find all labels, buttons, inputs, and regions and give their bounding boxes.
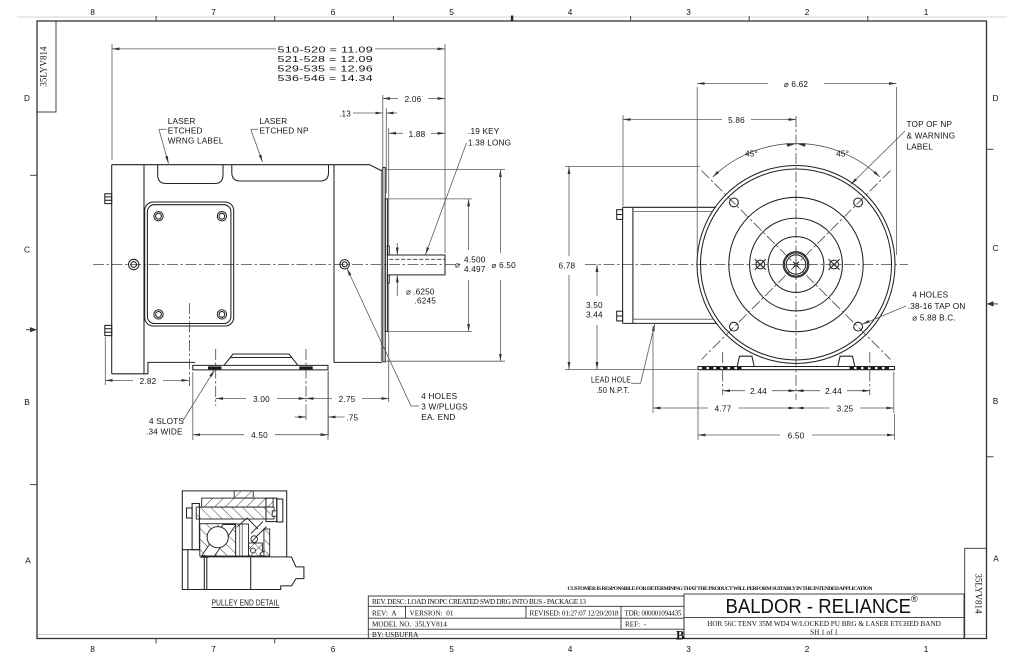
svg-text:BY: USBUFRA: BY: USBUFRA bbox=[372, 631, 419, 639]
svg-text:D: D bbox=[993, 93, 999, 103]
svg-text:REF: -: REF: - bbox=[625, 621, 647, 629]
svg-text:PULLEY END DETAIL: PULLEY END DETAIL bbox=[212, 598, 280, 607]
svg-text:.19 KEY: .19 KEY bbox=[468, 127, 500, 136]
svg-text:521-528 = 12.09: 521-528 = 12.09 bbox=[278, 55, 374, 64]
svg-text:45°: 45° bbox=[745, 150, 758, 159]
svg-text:ETCHED NP: ETCHED NP bbox=[260, 127, 309, 136]
svg-text:1.88: 1.88 bbox=[409, 130, 426, 139]
svg-text:4.77: 4.77 bbox=[715, 405, 732, 414]
svg-text:2.06: 2.06 bbox=[405, 95, 422, 104]
svg-text:⌀ 5.88 B.C.: ⌀ 5.88 B.C. bbox=[912, 314, 956, 323]
svg-text:3.50: 3.50 bbox=[586, 301, 603, 310]
svg-text:LASER: LASER bbox=[168, 117, 196, 126]
svg-text:B: B bbox=[24, 397, 30, 407]
svg-text:REV. DESC: LOAD INOPC CREATED: REV. DESC: LOAD INOPC CREATED SWD DRG IN… bbox=[372, 598, 586, 606]
svg-text:C: C bbox=[24, 245, 30, 255]
svg-text:35LYV814: 35LYV814 bbox=[39, 46, 49, 87]
svg-text:4: 4 bbox=[568, 7, 573, 17]
svg-text:3: 3 bbox=[686, 644, 691, 654]
svg-text:⌀ 6.50: ⌀ 6.50 bbox=[492, 261, 517, 270]
svg-text:2.44: 2.44 bbox=[750, 387, 767, 396]
svg-text:⌀ 6.62: ⌀ 6.62 bbox=[784, 80, 809, 89]
svg-text:8: 8 bbox=[90, 644, 95, 654]
svg-text:.34 WIDE: .34 WIDE bbox=[146, 428, 183, 437]
svg-text:3 W/PLUGS: 3 W/PLUGS bbox=[421, 403, 468, 412]
svg-text:BALDOR - RELIANCE: BALDOR - RELIANCE bbox=[726, 595, 912, 618]
svg-text:529-535 = 12.96: 529-535 = 12.96 bbox=[278, 64, 374, 73]
svg-text:1.38 LONG: 1.38 LONG bbox=[468, 139, 511, 148]
svg-text:3.25: 3.25 bbox=[837, 405, 854, 414]
svg-text:.6245: .6245 bbox=[415, 297, 437, 306]
svg-text:1: 1 bbox=[924, 7, 929, 17]
svg-text:7: 7 bbox=[211, 644, 216, 654]
svg-text:4: 4 bbox=[568, 644, 573, 654]
svg-text:2.75: 2.75 bbox=[339, 395, 356, 404]
svg-text:LASER: LASER bbox=[260, 117, 288, 126]
svg-text:2: 2 bbox=[805, 7, 810, 17]
svg-text:EA. END: EA. END bbox=[421, 413, 455, 422]
svg-text:8: 8 bbox=[90, 7, 95, 17]
svg-text:D: D bbox=[24, 93, 30, 103]
svg-text:MODEL NO. 35LYV814: MODEL NO. 35LYV814 bbox=[372, 621, 447, 629]
svg-text:VERSION: 01: VERSION: 01 bbox=[410, 610, 454, 618]
svg-text:6.78: 6.78 bbox=[559, 262, 576, 271]
svg-text:REVISED: 01:27:07 12/20/2018: REVISED: 01:27:07 12/20/2018 bbox=[530, 610, 619, 618]
svg-text:A: A bbox=[25, 556, 31, 566]
svg-text:7: 7 bbox=[211, 7, 216, 17]
svg-text:3.00: 3.00 bbox=[253, 395, 270, 404]
svg-text:45°: 45° bbox=[836, 150, 849, 159]
svg-text:CUSTOMER IS RESPONSIBLE FOR DE: CUSTOMER IS RESPONSIBLE FOR DETERMINING … bbox=[568, 586, 873, 592]
svg-text:4.497: 4.497 bbox=[464, 265, 486, 274]
svg-text:5: 5 bbox=[449, 7, 454, 17]
svg-text:3.44: 3.44 bbox=[586, 311, 603, 320]
svg-text:2: 2 bbox=[805, 644, 810, 654]
svg-text:SH 1 of 1: SH 1 of 1 bbox=[810, 629, 838, 637]
svg-text:.13: .13 bbox=[339, 109, 351, 118]
svg-text:5.86: 5.86 bbox=[728, 116, 745, 125]
svg-text:510-520 = 11.09: 510-520 = 11.09 bbox=[278, 45, 374, 54]
svg-text:ETCHED: ETCHED bbox=[168, 127, 203, 136]
svg-text:5: 5 bbox=[449, 644, 454, 654]
svg-text:LABEL: LABEL bbox=[907, 143, 934, 152]
svg-text:WRNG LABEL: WRNG LABEL bbox=[168, 137, 224, 146]
svg-text:536-546 = 14.34: 536-546 = 14.34 bbox=[278, 74, 374, 83]
svg-text:LEAD HOLE: LEAD HOLE bbox=[591, 376, 631, 385]
svg-text:.38-16 TAP ON: .38-16 TAP ON bbox=[908, 302, 966, 311]
svg-text:B: B bbox=[676, 629, 684, 643]
svg-text:C: C bbox=[993, 243, 999, 253]
svg-text:⌀: ⌀ bbox=[455, 261, 460, 270]
svg-text:REV: A: REV: A bbox=[372, 610, 397, 618]
svg-text:4 HOLES: 4 HOLES bbox=[912, 291, 948, 300]
svg-text:1: 1 bbox=[924, 644, 929, 654]
svg-text:HOR 56C TENV 35M WD4 W/LOCKED: HOR 56C TENV 35M WD4 W/LOCKED PU BRG & L… bbox=[707, 620, 941, 628]
svg-text:B: B bbox=[993, 396, 999, 406]
svg-text:6: 6 bbox=[331, 7, 336, 17]
svg-text:4 SLOTS: 4 SLOTS bbox=[149, 417, 184, 426]
svg-text:& WARNING: & WARNING bbox=[907, 131, 956, 140]
svg-text:35LYV814: 35LYV814 bbox=[974, 573, 984, 614]
svg-text:3: 3 bbox=[686, 7, 691, 17]
svg-text:4.500: 4.500 bbox=[464, 256, 486, 265]
svg-text:4.50: 4.50 bbox=[251, 431, 268, 440]
svg-text:⌀.6250: ⌀.6250 bbox=[406, 288, 435, 297]
svg-text:TDR: 000001094435: TDR: 000001094435 bbox=[625, 610, 682, 618]
svg-text:.75: .75 bbox=[346, 413, 358, 422]
svg-text:2.82: 2.82 bbox=[140, 377, 157, 386]
svg-text:2.44: 2.44 bbox=[825, 387, 842, 396]
svg-text:.50 N.P.T.: .50 N.P.T. bbox=[596, 386, 630, 395]
svg-text:A: A bbox=[993, 554, 999, 564]
svg-text:®: ® bbox=[911, 594, 918, 604]
svg-text:TOP OF NP: TOP OF NP bbox=[907, 120, 953, 129]
svg-text:4 HOLES: 4 HOLES bbox=[421, 392, 457, 401]
svg-text:6.50: 6.50 bbox=[788, 432, 805, 441]
svg-text:6: 6 bbox=[331, 644, 336, 654]
